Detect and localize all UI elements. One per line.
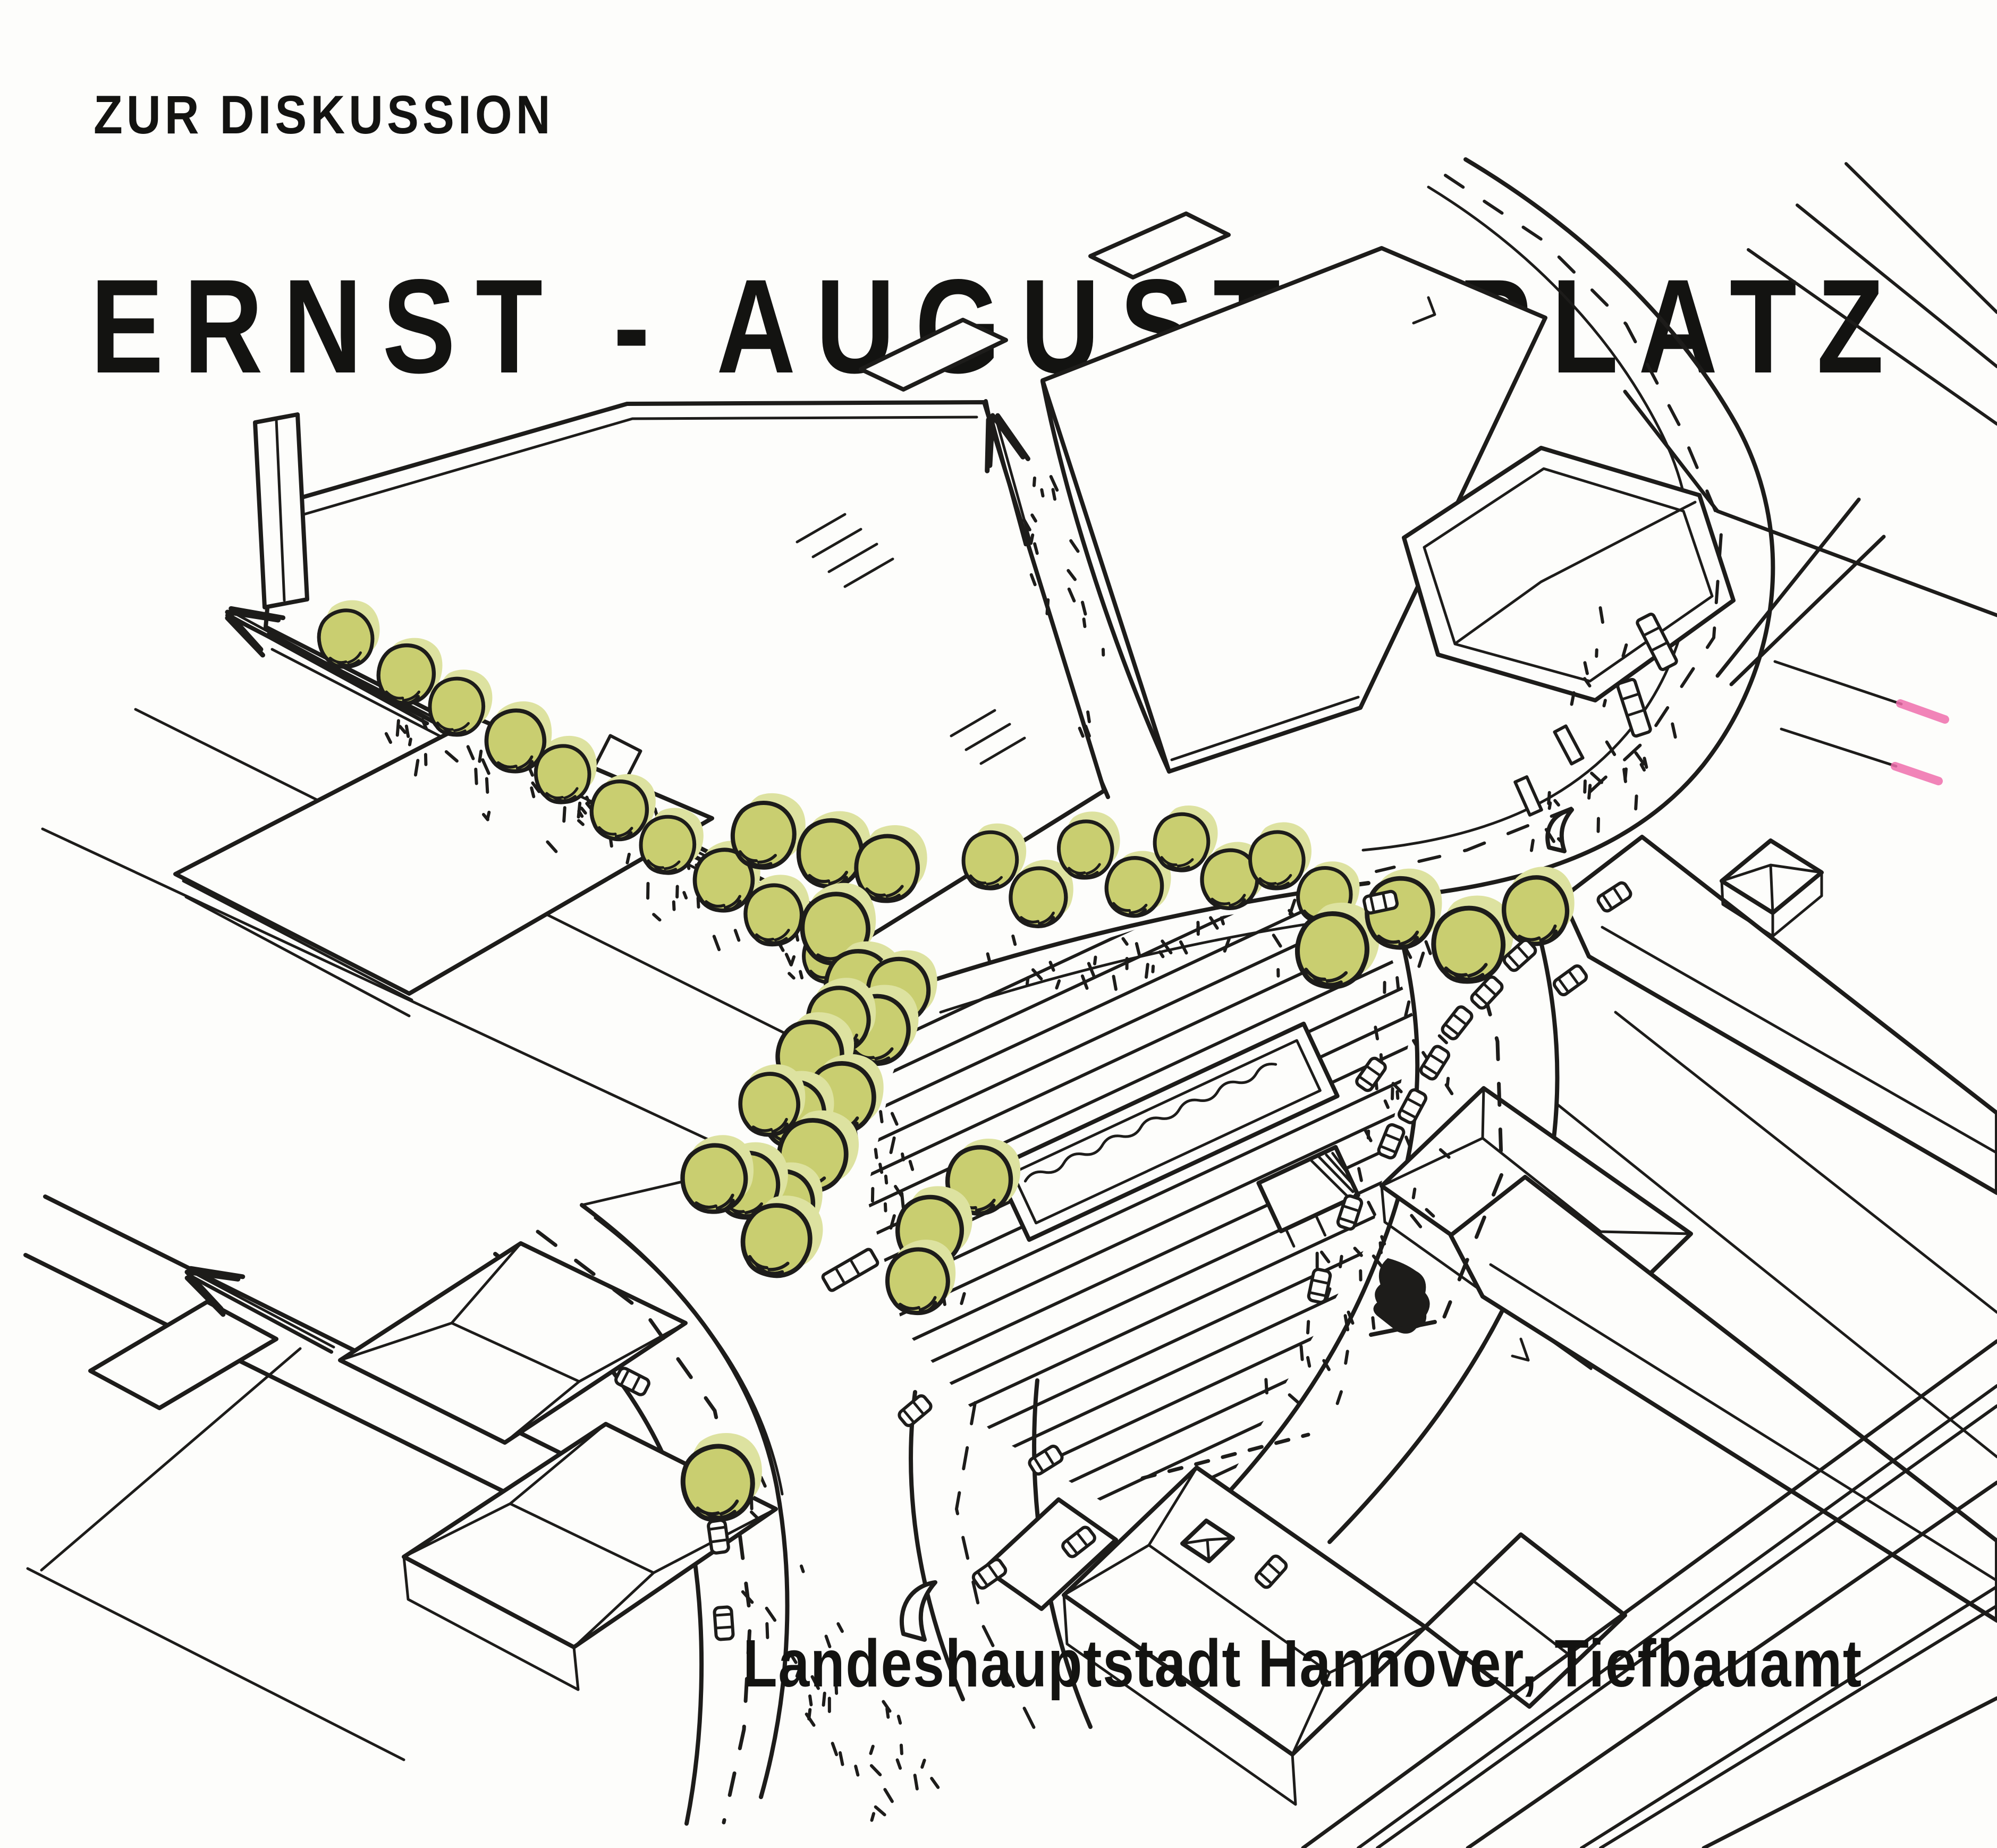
stipple-dash [1572, 693, 1574, 705]
stipple-dash [887, 1709, 888, 1717]
stipple-dash [881, 1112, 882, 1122]
stipple-dash [1266, 1379, 1267, 1393]
stipple-dash [587, 798, 589, 803]
stipple-dash [871, 1747, 873, 1753]
stipple-dash [476, 769, 476, 784]
tree [884, 1237, 959, 1316]
stipple-dash [386, 734, 391, 742]
stipple-dash [902, 1154, 903, 1160]
stipple-dash [1308, 1358, 1309, 1366]
stipple-dash [1397, 1091, 1398, 1098]
stipple-dash [1392, 1089, 1393, 1099]
stipple-dash [1032, 515, 1036, 521]
stipple-dash [1042, 490, 1043, 496]
stipple-dash [1095, 957, 1096, 963]
stipple-dash [1636, 753, 1644, 764]
stipple-dash [1406, 1137, 1409, 1146]
stipple-dash [1053, 489, 1054, 499]
stipple-dash [1589, 785, 1590, 798]
stipple-dash [1406, 1002, 1409, 1016]
stipple-dash [1035, 544, 1037, 553]
stipple-dash [407, 726, 408, 736]
stipple-dash [1440, 1036, 1446, 1042]
stipple-dash [1225, 939, 1229, 951]
bottom-corner-kerb [28, 1569, 404, 1760]
stipple-dash [1373, 1318, 1374, 1328]
stipple-dash [1084, 619, 1085, 626]
buildings-layer [90, 214, 1997, 1804]
stipple-dash [1368, 1202, 1375, 1215]
stipple-dash [1346, 1351, 1348, 1363]
stipple-dash [400, 726, 405, 732]
stipple-dash [761, 1477, 765, 1486]
stipple-dash [988, 954, 989, 961]
stipple-dash [876, 1149, 877, 1157]
stipple-dash [871, 1813, 874, 1820]
bus [822, 1248, 878, 1291]
stipple-dash [1301, 1346, 1302, 1360]
stipple-dash [767, 1608, 775, 1620]
stipple-dash [1375, 1027, 1377, 1039]
roof-structure [861, 320, 1006, 389]
stipple-dash [780, 945, 783, 951]
car [708, 1520, 729, 1554]
car [971, 1558, 1008, 1590]
roof-corner-mark [1512, 1339, 1528, 1360]
credit-text: Landeshauptstadt Hannover, Tiefbauamt [743, 1625, 1863, 1702]
stipple-dash [1414, 1189, 1415, 1198]
track-line [1846, 164, 1997, 312]
stipple-dash [801, 1566, 803, 1571]
stipple-dash [627, 854, 629, 863]
stipple-dash [856, 1766, 858, 1775]
stipple-dash [479, 751, 481, 761]
pink-marker-dash [1895, 766, 1939, 781]
stipple-dash [1051, 477, 1057, 490]
car [1377, 1123, 1405, 1159]
stipple-dash [840, 1753, 842, 1765]
track-line [1731, 537, 1884, 684]
car [1552, 964, 1588, 996]
stipple-dash [1047, 600, 1048, 614]
equestrian-statue [1371, 1259, 1435, 1335]
stipple-dash [898, 1760, 901, 1768]
stipple-dash [1222, 918, 1223, 923]
track-line [1717, 499, 1859, 676]
track-line [1775, 662, 1901, 704]
stipple-dash [871, 1766, 880, 1775]
track-line [1303, 1341, 1997, 1848]
stipple-dash [1153, 966, 1153, 971]
stipple-dash [1592, 773, 1602, 782]
stipple-dash [901, 1745, 902, 1754]
stipple-dash [1446, 1085, 1452, 1093]
car [898, 1394, 933, 1427]
stipple-dash [886, 1176, 886, 1183]
stipple-dash [735, 930, 739, 940]
stipple-dash [885, 1790, 892, 1801]
stipple-dash [1419, 953, 1423, 967]
stipple-dash [1585, 781, 1585, 792]
stipple-dash [1123, 939, 1127, 944]
stipple-dash [885, 1204, 886, 1211]
stipple-dash [1013, 936, 1015, 944]
stipple-dash [1381, 1243, 1381, 1252]
stipple-dash [892, 1114, 897, 1124]
stipple-dash [1051, 962, 1054, 970]
poster-page: ZUR DISKUSSION ERNST - AUGUST - PLATZ [0, 0, 1997, 1848]
stipple-dash [1385, 1101, 1388, 1107]
stipple-dash [910, 1162, 912, 1169]
stipple-dash [1198, 927, 1198, 934]
stipple-dash [1308, 1321, 1308, 1333]
stipple-dash [1397, 978, 1398, 989]
stipple-dash [714, 936, 719, 950]
stipple-dash [932, 1778, 938, 1787]
stipple-dash [833, 1743, 836, 1754]
stipple-dash [1274, 935, 1281, 946]
stipple-dash [1555, 801, 1559, 805]
track-line [1704, 1698, 1997, 1848]
bus-shelter [1515, 777, 1542, 815]
stipple-dash [1338, 1392, 1341, 1403]
stipple-dash [1146, 964, 1148, 977]
stipple-dash [1069, 589, 1074, 601]
car [1441, 1005, 1474, 1041]
stipple-dash [677, 886, 678, 897]
stipple-dash [1034, 478, 1035, 486]
stipple-dash [1068, 571, 1075, 580]
stipple-dash [1082, 603, 1085, 614]
stipple-dash [1290, 1395, 1299, 1403]
stipple-dash [1027, 978, 1028, 984]
stipple-dash [1636, 796, 1636, 809]
stipple-dash [674, 902, 674, 909]
stipple-dash [531, 788, 534, 796]
stipple-dash [1114, 977, 1116, 989]
stipple-dash [899, 1716, 900, 1723]
stipple-dash [487, 812, 489, 819]
stipple-dash [1340, 1257, 1342, 1267]
stipple-dash [1550, 803, 1551, 808]
stipple-dash [1359, 1168, 1361, 1180]
stipple-dash [1411, 1216, 1420, 1227]
site-sketch [0, 0, 1997, 1848]
stipple-dash [791, 957, 794, 965]
stipple-dash [922, 1760, 924, 1767]
stipple-dash [800, 972, 802, 978]
stipple-dash [1071, 541, 1078, 552]
stipple-dash [1322, 1252, 1328, 1262]
car [1355, 1056, 1387, 1092]
car [1398, 1088, 1427, 1124]
stipple-dash [654, 914, 659, 920]
stipple-dash [1290, 900, 1295, 914]
track-line [1781, 729, 1896, 766]
track-line [1797, 205, 1997, 367]
stipple-dash [684, 893, 686, 898]
stipple-dash [891, 1138, 894, 1152]
stipple-dash [880, 1164, 882, 1172]
stipple-dash [410, 739, 411, 744]
stipple-dash [961, 1294, 964, 1303]
stipple-dash [915, 1775, 917, 1789]
stipple-dash [397, 720, 399, 735]
stipple-dash [1644, 758, 1646, 767]
car [714, 1607, 733, 1640]
stipple-dash [564, 808, 565, 821]
car [1419, 1045, 1451, 1081]
stipple-dash [1672, 724, 1675, 737]
car [614, 1367, 650, 1396]
stipple-dash [1137, 944, 1139, 954]
stipple-dash [1056, 981, 1059, 988]
stipple-dash [1088, 712, 1089, 722]
stipple-dash [1604, 700, 1605, 706]
roof-structure [1090, 214, 1229, 277]
pink-marker-dash [1900, 703, 1945, 719]
stipple-dash [1531, 841, 1533, 851]
stipple-dash [789, 973, 794, 978]
stipple-dash [1625, 769, 1626, 779]
stipple-dash [1426, 942, 1430, 953]
stipple-dash [487, 779, 487, 792]
pink-marker-highlights [1895, 703, 1945, 781]
stipple-dash [876, 1807, 885, 1815]
bus-shelter [1554, 726, 1583, 764]
stipple-dash [1082, 976, 1087, 988]
